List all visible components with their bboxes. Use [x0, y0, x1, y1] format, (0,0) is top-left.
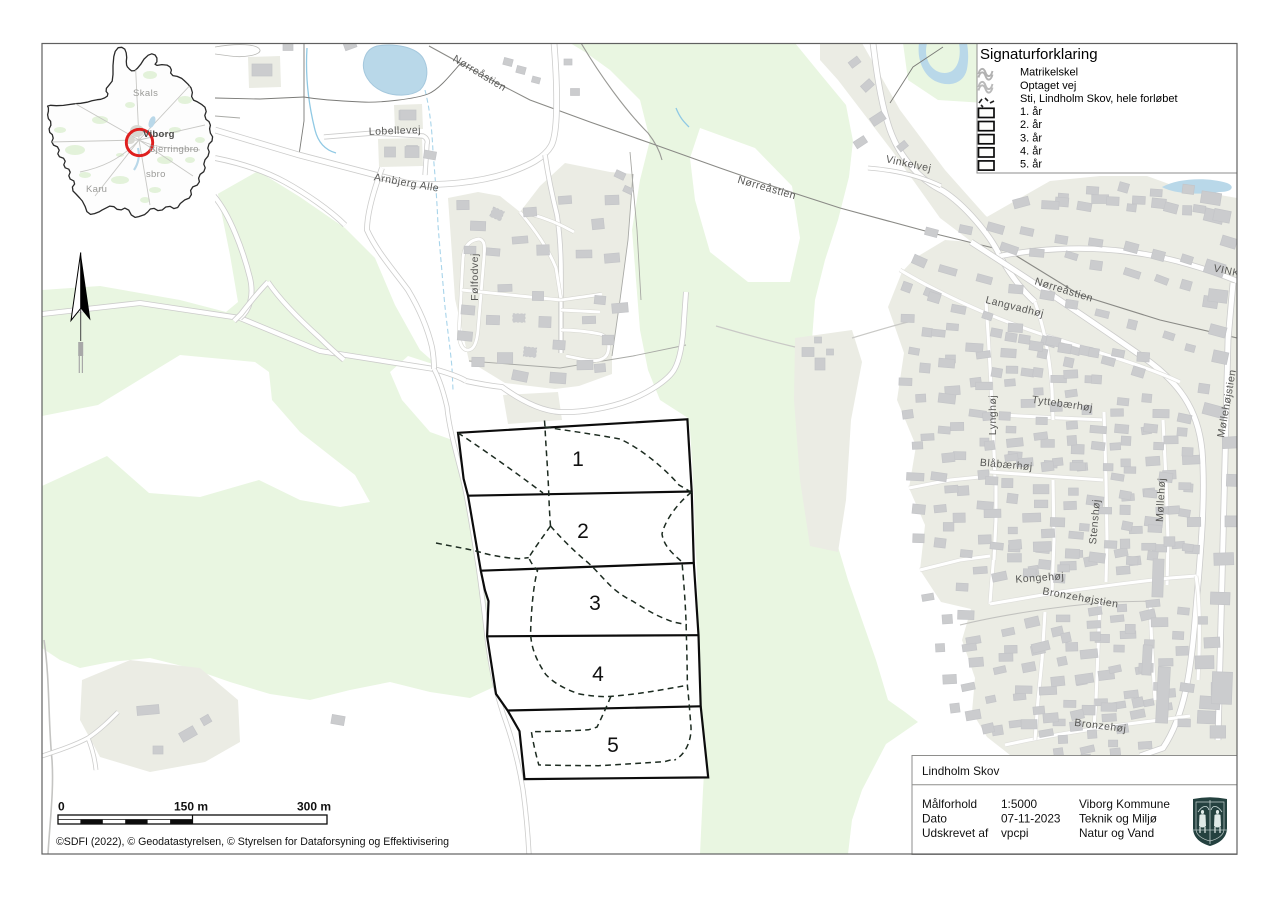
svg-text:0: 0	[58, 800, 65, 814]
svg-text:Matrikelskel: Matrikelskel	[1020, 67, 1078, 79]
svg-text:sbro: sbro	[146, 169, 166, 180]
svg-text:5. år: 5. år	[1020, 159, 1042, 171]
svg-text:5: 5	[607, 734, 619, 757]
svg-text:1. år: 1. år	[1020, 106, 1042, 118]
svg-text:07-11-2023: 07-11-2023	[1001, 812, 1061, 826]
svg-text:Karu: Karu	[86, 184, 107, 195]
svg-text:Skals: Skals	[133, 88, 158, 99]
svg-text:Optaget vej: Optaget vej	[1020, 80, 1076, 92]
svg-text:Udskrevet af: Udskrevet af	[922, 826, 989, 840]
svg-text:vpcpi: vpcpi	[1001, 826, 1029, 840]
svg-text:Viborg: Viborg	[143, 129, 175, 140]
svg-text:Signaturforklaring: Signaturforklaring	[980, 46, 1098, 63]
svg-text:Målforhold: Målforhold	[922, 797, 977, 811]
svg-text:3. år: 3. år	[1020, 132, 1042, 144]
svg-text:Viborg Kommune: Viborg Kommune	[1079, 797, 1170, 811]
svg-text:Dato: Dato	[922, 812, 947, 826]
svg-text:©SDFI (2022), © Geodatastyrels: ©SDFI (2022), © Geodatastyrelsen, © Styr…	[56, 836, 449, 848]
svg-text:2. år: 2. år	[1020, 119, 1042, 131]
svg-text:Bjerringbro: Bjerringbro	[149, 144, 199, 155]
svg-text:3: 3	[589, 592, 601, 615]
svg-text:4: 4	[592, 663, 604, 686]
svg-text:Følfodvej: Følfodvej	[469, 253, 481, 301]
svg-text:4. år: 4. år	[1020, 146, 1042, 158]
svg-text:2: 2	[577, 520, 589, 543]
svg-text:Teknik og Miljø: Teknik og Miljø	[1079, 812, 1157, 826]
svg-text:150 m: 150 m	[174, 800, 208, 814]
svg-text:1:5000: 1:5000	[1001, 797, 1038, 811]
svg-text:Møllehøj: Møllehøj	[1154, 477, 1168, 522]
svg-text:Sti, Lindholm Skov, hele forlø: Sti, Lindholm Skov, hele forløbet	[1020, 93, 1178, 105]
svg-text:Lobellevej: Lobellevej	[369, 124, 422, 138]
svg-text:1: 1	[572, 448, 584, 471]
svg-text:Lynghøj: Lynghøj	[987, 395, 999, 435]
svg-text:Lindholm Skov: Lindholm Skov	[922, 764, 999, 778]
svg-text:300 m: 300 m	[297, 800, 331, 814]
svg-text:Natur og Vand: Natur og Vand	[1079, 826, 1154, 840]
